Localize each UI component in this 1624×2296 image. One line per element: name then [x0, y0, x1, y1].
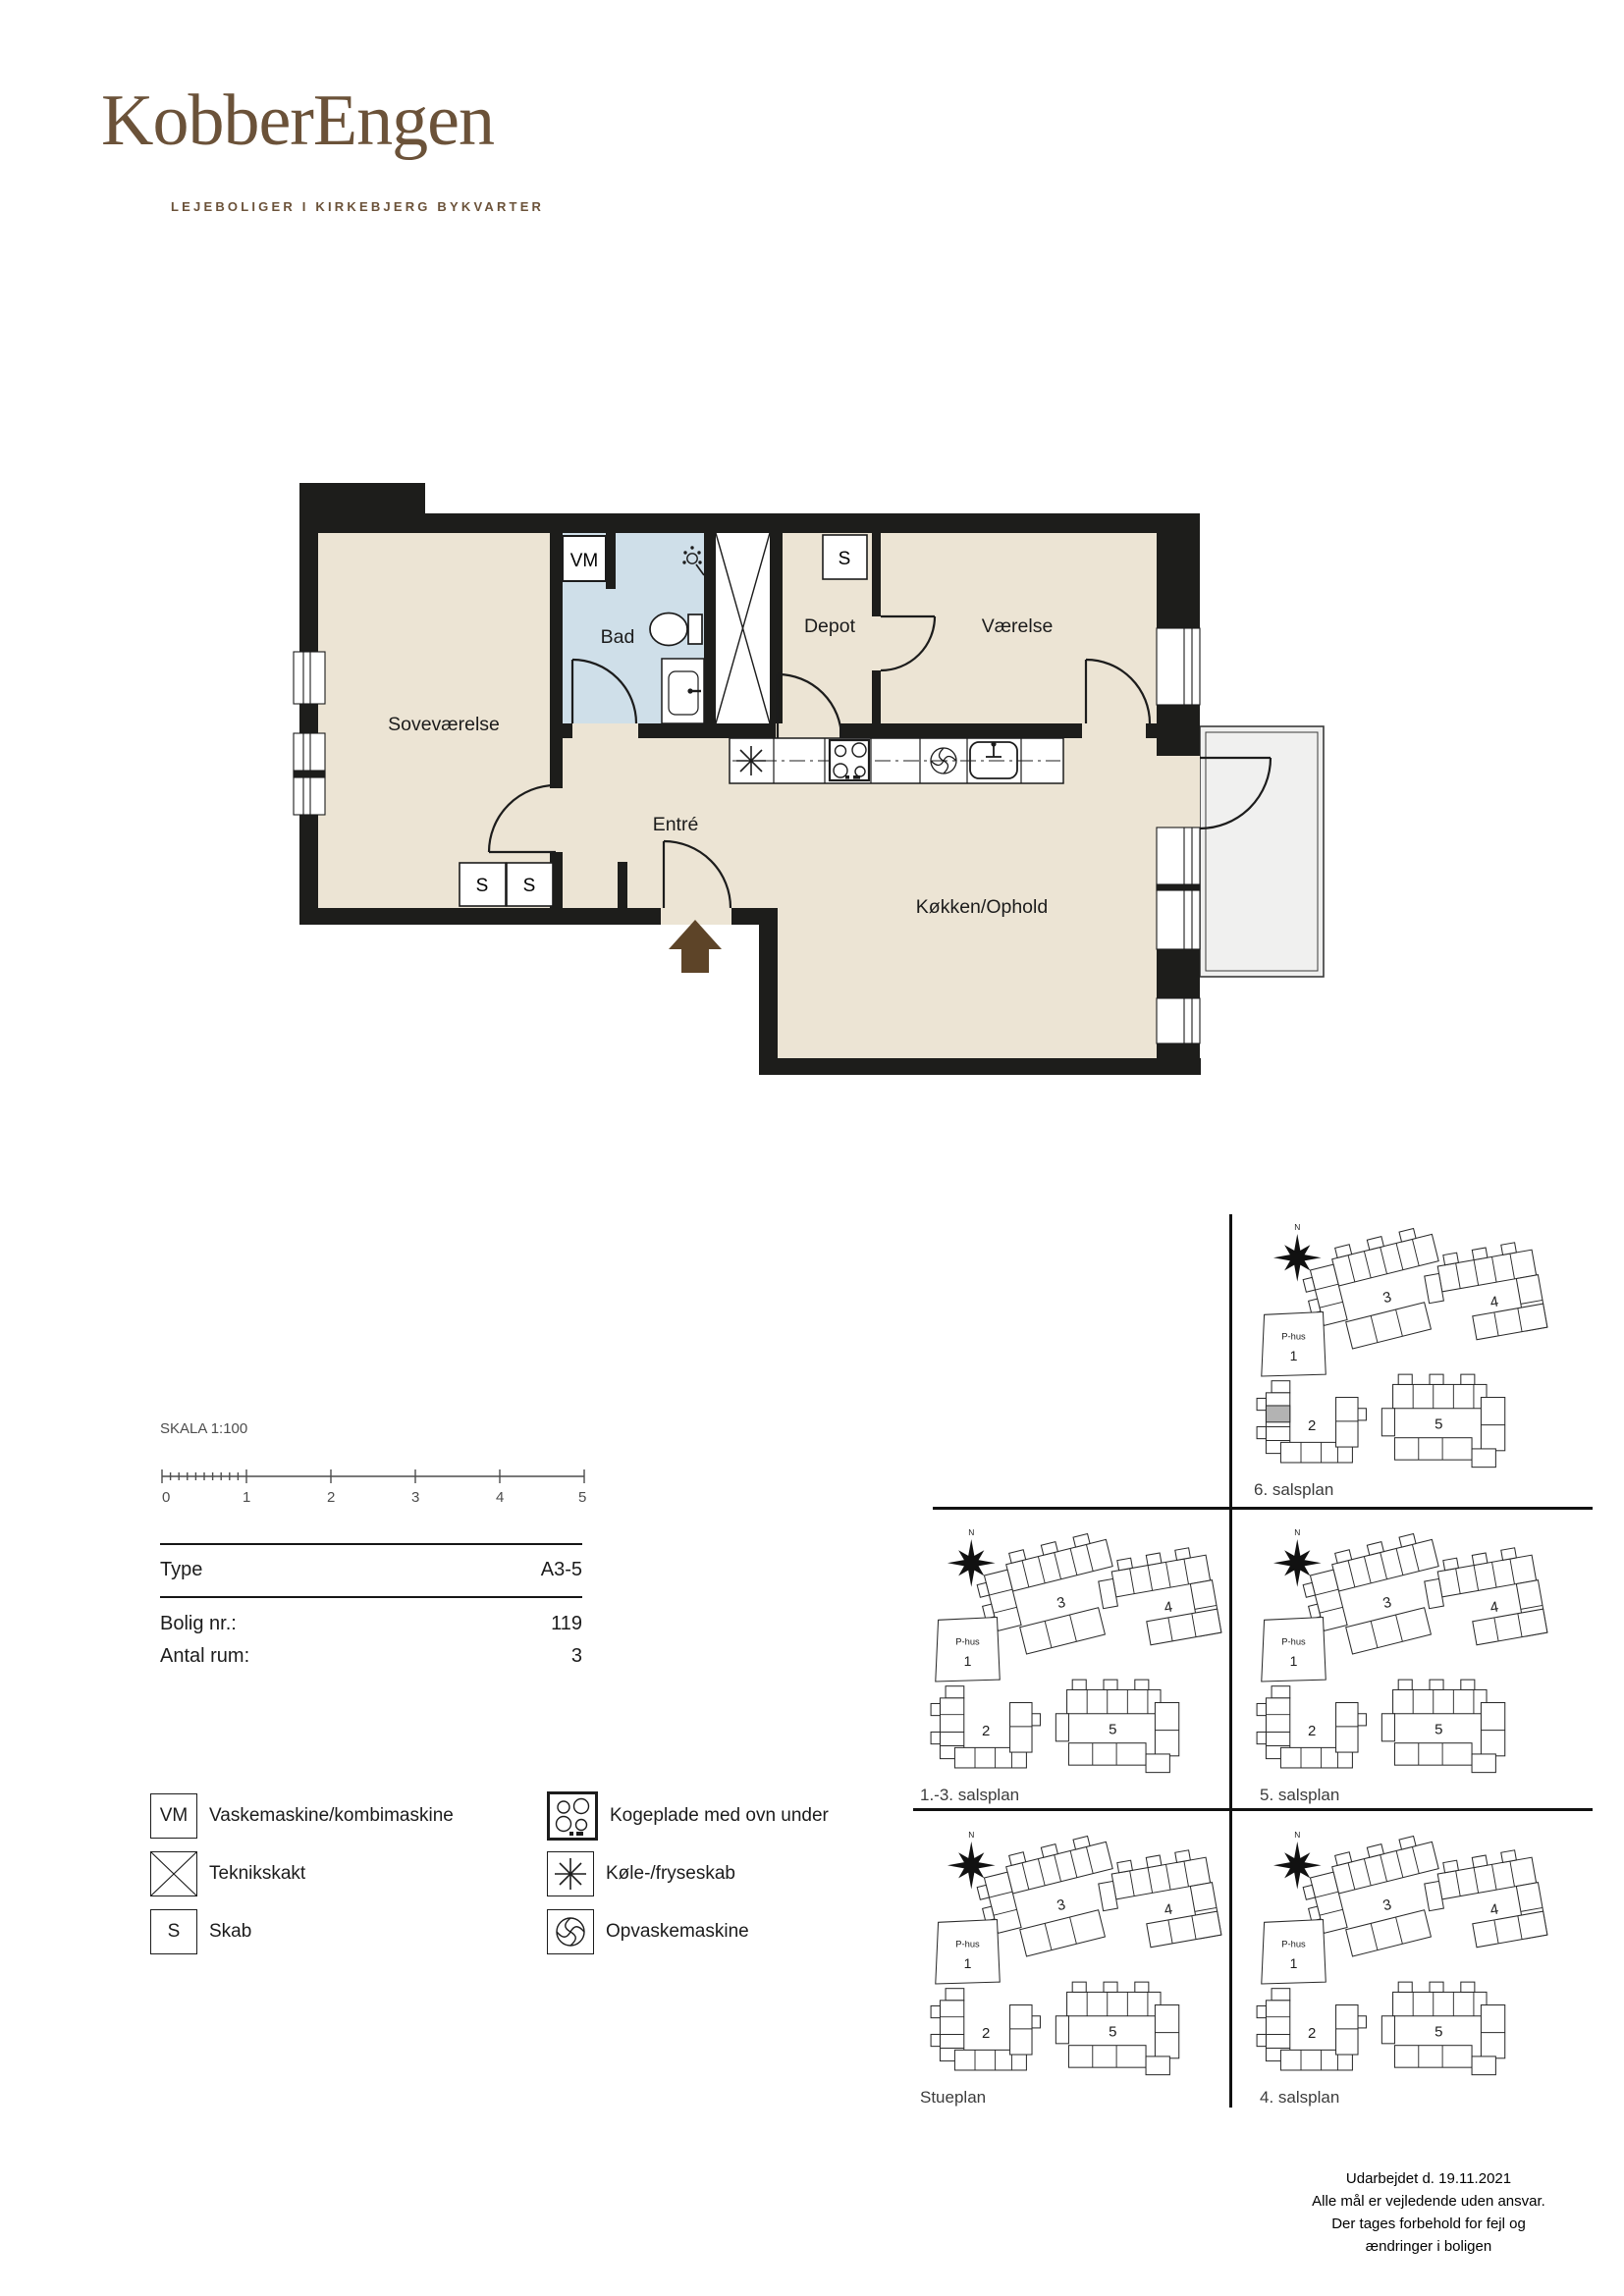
p-hus: P-hus 1: [1262, 1920, 1326, 1985]
highlighted-unit: [1266, 1406, 1289, 1422]
scale-title: SKALA 1:100: [160, 1420, 247, 1437]
svg-text:1: 1: [1290, 1653, 1298, 1669]
room-label-depot: Depot: [804, 615, 856, 637]
info-label: Antal rum:: [160, 1645, 249, 1668]
footer-line: ændringer i boligen: [1218, 2235, 1624, 2258]
s-box-icon: S: [150, 1909, 197, 1954]
s-marker: S: [523, 876, 536, 896]
room-label-kitchen: Køkken/Ophold: [916, 896, 1048, 918]
building-4: 4: [1422, 1847, 1547, 1954]
siteplan-graphic: N 3 4 P-hus 1: [913, 1827, 1237, 2084]
building-5: 5: [1056, 1982, 1178, 2075]
svg-text:5: 5: [1435, 1415, 1442, 1432]
page: KobberEngen LEJEBOLIGER I KIRKEBJERG BYK…: [0, 0, 1624, 2296]
building-2: 2: [931, 1686, 1040, 1768]
scale-tick: 0: [162, 1489, 170, 1506]
footer-disclaimer: Udarbejdet d. 19.11.2021 Alle mål er vej…: [1218, 2167, 1624, 2258]
p-hus: P-hus 1: [1262, 1312, 1326, 1377]
legend-label: Skab: [209, 1921, 251, 1943]
building-5: 5: [1056, 1680, 1178, 1773]
p-hus: P-hus 1: [1262, 1618, 1326, 1682]
room-label-entry: Entré: [653, 814, 699, 835]
svg-text:5: 5: [1109, 1721, 1116, 1737]
legend-label: Vaskemaskine/kombimaskine: [209, 1805, 454, 1827]
siteplan-graphic: N 3 4 P-hus 1: [913, 1524, 1237, 1782]
legend-item-stove: Kogeplade med ovn under: [547, 1792, 829, 1839]
freezer-icon: [736, 746, 766, 775]
footer-line: Udarbejdet d. 19.11.2021: [1218, 2167, 1624, 2190]
floor-plan: VM S S S Soveværelse Bad Depot Værelse E…: [285, 471, 1335, 1090]
svg-text:4: 4: [1489, 1901, 1499, 1919]
legend-left: VM Vaskemaskine/kombimaskine Teknikskakt…: [150, 1792, 454, 1966]
building-2: 2: [1257, 1381, 1366, 1463]
stove-icon: [547, 1791, 598, 1841]
svg-text:2: 2: [1308, 1723, 1316, 1739]
svg-text:4: 4: [1163, 1901, 1173, 1919]
svg-text:N: N: [1294, 1222, 1300, 1232]
scale-tick: 5: [578, 1489, 586, 1506]
stove-icon: [830, 740, 869, 780]
dishwasher-icon: [547, 1909, 594, 1954]
building-4: 4: [1096, 1847, 1221, 1954]
p-hus: P-hus 1: [936, 1920, 1001, 1985]
scale-tick: 3: [411, 1489, 419, 1506]
siteplan-label: Stueplan: [920, 2088, 986, 2108]
svg-text:2: 2: [1308, 1417, 1316, 1434]
siteplan-divider-h1: [933, 1507, 1593, 1510]
siteplan-4-salsplan: N 3 4 P-hus 1: [1239, 1827, 1563, 2084]
scale-bar: 0 1 2 3 4 5: [160, 1468, 602, 1516]
vm-marker: VM: [570, 551, 599, 571]
svg-text:2: 2: [982, 2025, 990, 2042]
info-row-rum: Antal rum: 3: [160, 1635, 582, 1668]
legend-item-skab: S Skab: [150, 1908, 454, 1954]
room-label-bath: Bad: [601, 626, 635, 648]
svg-text:3: 3: [1056, 1594, 1067, 1613]
svg-text:P-hus: P-hus: [955, 1940, 980, 1949]
building-4: 4: [1422, 1545, 1547, 1652]
info-value: 119: [551, 1613, 582, 1635]
siteplan-label: 4. salsplan: [1260, 2088, 1339, 2108]
entrance-arrow-icon: [669, 920, 722, 973]
legend-item-vm: VM Vaskemaskine/kombimaskine: [150, 1792, 454, 1839]
svg-text:3: 3: [1381, 1289, 1393, 1308]
svg-text:N: N: [968, 1830, 974, 1840]
siteplan-label: 5. salsplan: [1260, 1786, 1339, 1805]
svg-text:P-hus: P-hus: [1281, 1637, 1306, 1647]
s-marker: S: [839, 549, 851, 569]
info-row-type: Type A3-5: [160, 1545, 582, 1596]
svg-text:1: 1: [964, 1955, 972, 1971]
s-marker: S: [476, 876, 489, 896]
technical-shaft: [716, 533, 770, 723]
siteplan-graphic: N 3 4 P-hus 1: [1239, 1524, 1563, 1782]
info-label: Type: [160, 1559, 202, 1581]
footer-line: Der tages forbehold for fejl og: [1218, 2213, 1624, 2235]
siteplan-label: 1.-3. salsplan: [920, 1786, 1019, 1805]
legend-label: Kogeplade med ovn under: [610, 1805, 829, 1827]
brand-tagline: LEJEBOLIGER I KIRKEBJERG BYKVARTER: [171, 199, 544, 214]
svg-text:4: 4: [1489, 1294, 1499, 1311]
svg-text:1: 1: [964, 1653, 972, 1669]
siteplan-1-3-salsplan: N 3 4 P-hus 1: [913, 1524, 1237, 1782]
legend-label: Opvaskemaskine: [606, 1921, 749, 1943]
siteplan-stueplan: N 3 4 P-hus 1: [913, 1827, 1237, 2084]
scale-tick: 2: [327, 1489, 335, 1506]
info-value: A3-5: [541, 1559, 582, 1581]
svg-text:5: 5: [1435, 2023, 1442, 2040]
svg-text:P-hus: P-hus: [1281, 1332, 1306, 1342]
svg-text:P-hus: P-hus: [955, 1637, 980, 1647]
building-2: 2: [1257, 1989, 1366, 2070]
vm-box-icon: VM: [150, 1793, 197, 1839]
building-4: 4: [1422, 1240, 1547, 1347]
svg-text:3: 3: [1056, 1896, 1067, 1915]
balcony: [1200, 726, 1324, 977]
svg-text:2: 2: [982, 1723, 990, 1739]
building-2: 2: [1257, 1686, 1366, 1768]
kitchen-counter: [730, 738, 1063, 783]
room-label-room: Værelse: [982, 615, 1054, 637]
svg-text:4: 4: [1489, 1599, 1499, 1617]
svg-text:2: 2: [1308, 2025, 1316, 2042]
svg-text:P-hus: P-hus: [1281, 1940, 1306, 1949]
info-row-bolig: Bolig nr.: 119: [160, 1598, 582, 1635]
svg-text:1: 1: [1290, 1348, 1298, 1363]
toilet-icon: [650, 614, 702, 646]
svg-text:1: 1: [1290, 1955, 1298, 1971]
legend-label: Køle-/fryseskab: [606, 1863, 735, 1885]
info-table: Type A3-5 Bolig nr.: 119 Antal rum: 3: [160, 1543, 582, 1668]
scale-tick: 4: [496, 1489, 504, 1506]
svg-text:3: 3: [1381, 1594, 1393, 1613]
building-5: 5: [1381, 1982, 1504, 2075]
scale-tick: 1: [243, 1489, 250, 1506]
svg-text:4: 4: [1163, 1599, 1173, 1617]
legend-item-fridge: Køle-/fryseskab: [547, 1850, 829, 1896]
p-hus: P-hus 1: [936, 1618, 1001, 1682]
svg-text:N: N: [968, 1527, 974, 1537]
siteplan-5-salsplan: N 3 4 P-hus 1: [1239, 1524, 1563, 1782]
room-label-bedroom: Soveværelse: [388, 714, 500, 735]
svg-text:N: N: [1294, 1830, 1300, 1840]
legend-item-shaft: Teknikskakt: [150, 1850, 454, 1896]
info-label: Bolig nr.:: [160, 1613, 237, 1635]
building-5: 5: [1381, 1680, 1504, 1773]
washbasin-icon: [662, 659, 704, 723]
brand-logo: KobberEngen: [101, 84, 494, 157]
siteplan-6-salsplan: N 3 4 P-hus 1: [1239, 1219, 1563, 1476]
siteplan-graphic: N 3 4 P-hus 1: [1239, 1219, 1563, 1476]
svg-text:3: 3: [1381, 1896, 1393, 1915]
freezer-icon: [547, 1851, 594, 1896]
info-value: 3: [571, 1645, 582, 1668]
building-4: 4: [1096, 1545, 1221, 1652]
building-5: 5: [1381, 1374, 1504, 1468]
building-2: 2: [931, 1989, 1040, 2070]
shaft-icon: [150, 1851, 197, 1896]
legend-label: Teknikskakt: [209, 1863, 305, 1885]
svg-text:N: N: [1294, 1527, 1300, 1537]
footer-line: Alle mål er vejledende uden ansvar.: [1218, 2190, 1624, 2213]
siteplan-label: 6. salsplan: [1254, 1480, 1333, 1500]
siteplan-divider-h2: [913, 1808, 1593, 1811]
svg-text:5: 5: [1435, 1721, 1442, 1737]
svg-text:5: 5: [1109, 2023, 1116, 2040]
legend-right: Kogeplade med ovn under Køle-/fryseskab …: [547, 1792, 829, 1966]
siteplan-graphic: N 3 4 P-hus 1: [1239, 1827, 1563, 2084]
legend-item-dishwasher: Opvaskemaskine: [547, 1908, 829, 1954]
